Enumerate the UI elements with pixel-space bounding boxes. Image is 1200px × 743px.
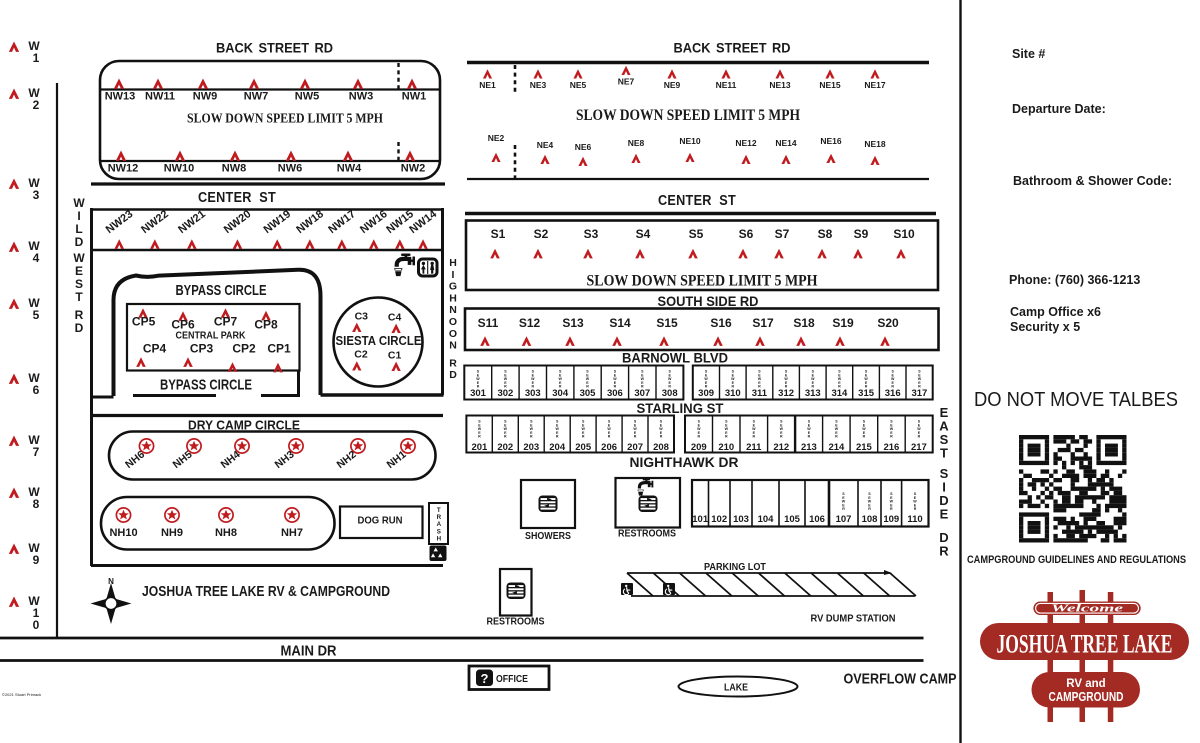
svg-text:109: 109 <box>883 514 899 525</box>
svg-text:BYPASS CIRCLE: BYPASS CIRCLE <box>176 282 267 299</box>
svg-text:NE9: NE9 <box>664 80 681 90</box>
svg-text:SHOWERS: SHOWERS <box>525 531 571 542</box>
svg-text:102: 102 <box>711 514 727 525</box>
svg-text:309: 309 <box>698 388 714 399</box>
svg-text:S6: S6 <box>739 227 754 241</box>
svg-text:JOSHUA TREE LAKE: JOSHUA TREE LAKE <box>997 630 1173 659</box>
svg-text:302: 302 <box>497 388 513 399</box>
svg-text:NW4: NW4 <box>337 163 362 175</box>
svg-text:NH9: NH9 <box>161 527 183 539</box>
svg-text:NE11: NE11 <box>716 80 737 90</box>
svg-text:213: 213 <box>801 442 817 453</box>
svg-text:Departure Date:: Departure Date: <box>1012 102 1106 116</box>
svg-text:©2021 Stuart Primack: ©2021 Stuart Primack <box>2 692 41 697</box>
svg-text:CP4: CP4 <box>143 342 167 356</box>
svg-text:NE15: NE15 <box>819 80 841 90</box>
svg-text:Phone: (760) 366-1213: Phone: (760) 366-1213 <box>1009 273 1140 287</box>
svg-text:?: ? <box>481 671 489 686</box>
svg-text:6: 6 <box>33 383 40 397</box>
svg-text:NW12: NW12 <box>108 163 139 175</box>
svg-text:BARNOWL BLVD: BARNOWL BLVD <box>622 350 728 366</box>
svg-text:RESTROOMS: RESTROOMS <box>618 529 676 540</box>
svg-text:NE13: NE13 <box>769 80 791 90</box>
svg-text:CENTRAL PARK: CENTRAL PARK <box>176 330 246 342</box>
svg-text:206: 206 <box>601 442 617 453</box>
svg-text:RESTROOMS: RESTROOMS <box>487 617 545 628</box>
svg-text:3: 3 <box>33 188 40 202</box>
svg-text:S11: S11 <box>478 316 499 330</box>
svg-text:S18: S18 <box>793 316 815 330</box>
svg-text:212: 212 <box>773 442 789 453</box>
svg-text:NW6: NW6 <box>278 163 302 175</box>
svg-text:208: 208 <box>653 442 669 453</box>
svg-text:S5: S5 <box>689 227 704 241</box>
svg-text:NW2: NW2 <box>401 163 425 175</box>
svg-text:Security x 5: Security x 5 <box>1010 320 1080 334</box>
svg-text:NE17: NE17 <box>864 80 886 90</box>
svg-text:NE18: NE18 <box>864 139 886 149</box>
svg-text:101: 101 <box>692 514 709 525</box>
svg-text:303: 303 <box>525 388 541 399</box>
svg-text:301: 301 <box>470 388 487 399</box>
svg-text:1: 1 <box>33 51 40 65</box>
svg-text:314: 314 <box>831 388 848 399</box>
svg-text:NE4: NE4 <box>537 140 554 150</box>
svg-text:JOSHUA TREE LAKE RV & CAMPGROU: JOSHUA TREE LAKE RV & CAMPGROUND <box>142 584 390 600</box>
svg-text:8: 8 <box>33 497 40 511</box>
svg-text:5: 5 <box>33 308 40 322</box>
svg-text:S7: S7 <box>775 227 790 241</box>
svg-text:316: 316 <box>885 388 901 399</box>
svg-text:C4: C4 <box>388 312 402 324</box>
svg-text:S14: S14 <box>609 316 631 330</box>
svg-text:7: 7 <box>33 445 40 459</box>
svg-text:PARKING LOT: PARKING LOT <box>704 561 766 573</box>
svg-text:NE12: NE12 <box>735 138 757 148</box>
svg-text:216: 216 <box>883 442 899 453</box>
svg-text:S2: S2 <box>534 227 549 241</box>
svg-text:NE7: NE7 <box>618 77 635 87</box>
svg-text:CAMPGROUND: CAMPGROUND <box>1049 690 1124 704</box>
svg-text:BACK STREET RD: BACK STREET RD <box>674 40 791 56</box>
svg-text:STARLING ST: STARLING ST <box>637 400 724 416</box>
svg-text:BACK STREET RD: BACK STREET RD <box>216 40 333 56</box>
svg-text:Bathroom & Shower Code:: Bathroom & Shower Code: <box>1013 174 1172 188</box>
svg-text:317: 317 <box>911 388 927 399</box>
svg-text:313: 313 <box>805 388 821 399</box>
svg-text:202: 202 <box>497 442 513 453</box>
svg-text:C1: C1 <box>388 350 402 362</box>
svg-text:S20: S20 <box>877 316 899 330</box>
svg-text:CP2: CP2 <box>232 342 256 356</box>
svg-text:NW10: NW10 <box>164 163 195 175</box>
svg-text:SLOW DOWN SPEED LIMIT 5 MPH: SLOW DOWN SPEED LIMIT 5 MPH <box>587 273 818 290</box>
svg-text:OVERFLOW CAMP: OVERFLOW CAMP <box>844 671 957 688</box>
svg-text:MAIN DR: MAIN DR <box>281 644 337 660</box>
svg-text:307: 307 <box>634 388 650 399</box>
svg-text:Site #: Site # <box>1012 47 1045 61</box>
svg-text:NW7: NW7 <box>244 91 268 103</box>
svg-text:CP5: CP5 <box>132 315 156 329</box>
svg-text:NE16: NE16 <box>820 136 842 146</box>
svg-text:S1: S1 <box>491 227 506 241</box>
svg-text:215: 215 <box>856 442 873 453</box>
svg-text:SLOW DOWN SPEED LIMIT 5 MPH: SLOW DOWN SPEED LIMIT 5 MPH <box>187 112 383 127</box>
svg-text:RV and: RV and <box>1066 678 1105 690</box>
svg-text:108: 108 <box>862 514 878 525</box>
svg-text:306: 306 <box>607 388 623 399</box>
svg-text:CP1: CP1 <box>267 342 291 356</box>
svg-text:103: 103 <box>733 514 749 525</box>
svg-text:S8: S8 <box>818 227 833 241</box>
svg-text:NE10: NE10 <box>679 136 701 146</box>
svg-text:NW13: NW13 <box>105 91 136 103</box>
svg-text:N: N <box>108 577 114 586</box>
svg-text:NE3: NE3 <box>530 80 547 90</box>
svg-text:S3: S3 <box>584 227 599 241</box>
svg-text:CP8: CP8 <box>254 318 278 332</box>
svg-text:C2: C2 <box>354 349 368 361</box>
svg-text:S4: S4 <box>636 227 651 241</box>
svg-text:CENTER ST: CENTER ST <box>658 193 736 209</box>
svg-text:S12: S12 <box>519 316 541 330</box>
svg-text:308: 308 <box>662 388 678 399</box>
svg-text:C3: C3 <box>355 311 369 323</box>
svg-text:NW5: NW5 <box>295 91 319 103</box>
svg-text:NW11: NW11 <box>145 91 175 103</box>
svg-text:207: 207 <box>627 442 643 453</box>
svg-text:NE8: NE8 <box>628 138 645 148</box>
svg-text:4: 4 <box>33 251 40 265</box>
svg-text:Welcome: Welcome <box>1051 604 1124 615</box>
svg-text:214: 214 <box>828 442 845 453</box>
svg-text:S16: S16 <box>710 316 732 330</box>
svg-text:311: 311 <box>752 388 768 399</box>
svg-text:NH7: NH7 <box>281 527 303 539</box>
svg-text:210: 210 <box>718 442 734 453</box>
svg-text:205: 205 <box>575 442 592 453</box>
svg-text:Camp Office x6: Camp Office x6 <box>1010 305 1101 319</box>
svg-text:106: 106 <box>809 514 825 525</box>
svg-text:NH8: NH8 <box>215 527 237 539</box>
svg-text:NIGHTHAWK DR: NIGHTHAWK DR <box>630 454 739 470</box>
svg-text:209: 209 <box>691 442 707 453</box>
svg-text:CAMPGROUND GUIDELINES AND REGU: CAMPGROUND GUIDELINES AND REGULATIONS <box>967 554 1186 566</box>
svg-text:S17: S17 <box>752 316 774 330</box>
svg-text:CP7: CP7 <box>214 315 238 329</box>
svg-text:9: 9 <box>33 553 40 567</box>
svg-text:OFFICE: OFFICE <box>496 673 528 685</box>
svg-text:NE6: NE6 <box>575 142 592 152</box>
svg-text:305: 305 <box>580 388 597 399</box>
svg-text:DOG RUN: DOG RUN <box>358 516 403 527</box>
svg-text:304: 304 <box>552 388 569 399</box>
svg-text:203: 203 <box>523 442 539 453</box>
svg-text:NW8: NW8 <box>222 163 246 175</box>
svg-text:SIESTA CIRCLE: SIESTA CIRCLE <box>336 334 422 348</box>
svg-text:310: 310 <box>725 388 741 399</box>
svg-text:217: 217 <box>911 442 927 453</box>
svg-text:RV DUMP STATION: RV DUMP STATION <box>811 613 896 625</box>
svg-text:NE1: NE1 <box>479 80 496 90</box>
svg-text:2: 2 <box>33 98 40 112</box>
svg-text:BYPASS CIRCLE: BYPASS CIRCLE <box>160 377 252 394</box>
svg-text:S19: S19 <box>832 316 854 330</box>
svg-text:NW3: NW3 <box>349 91 373 103</box>
svg-text:NW1: NW1 <box>402 91 426 103</box>
svg-text:NW9: NW9 <box>193 91 217 103</box>
svg-text:211: 211 <box>746 442 762 453</box>
svg-text:NE2: NE2 <box>488 133 505 143</box>
svg-text:S10: S10 <box>893 227 915 241</box>
svg-text:105: 105 <box>784 514 801 525</box>
svg-text:NE5: NE5 <box>570 80 587 90</box>
svg-text:104: 104 <box>758 514 775 525</box>
svg-text:107: 107 <box>836 514 852 525</box>
svg-text:CENTER ST: CENTER ST <box>198 190 276 206</box>
svg-text:CP3: CP3 <box>190 342 214 356</box>
svg-text:LAKE: LAKE <box>724 683 748 694</box>
svg-text:NE14: NE14 <box>775 138 797 148</box>
svg-text:DO NOT MOVE TALBES: DO NOT MOVE TALBES <box>974 388 1178 411</box>
svg-text:315: 315 <box>858 388 875 399</box>
svg-text:S13: S13 <box>562 316 584 330</box>
svg-text:312: 312 <box>778 388 794 399</box>
svg-text:0: 0 <box>33 618 40 632</box>
svg-text:SLOW DOWN SPEED LIMIT 5 MPH: SLOW DOWN SPEED LIMIT 5 MPH <box>576 107 800 124</box>
svg-text:S9: S9 <box>854 227 869 241</box>
svg-text:S15: S15 <box>656 316 678 330</box>
svg-text:SOUTH SIDE RD: SOUTH SIDE RD <box>658 293 759 309</box>
svg-text:204: 204 <box>549 442 566 453</box>
svg-text:NH10: NH10 <box>109 527 137 539</box>
svg-text:201: 201 <box>471 442 488 453</box>
svg-text:110: 110 <box>907 514 922 525</box>
